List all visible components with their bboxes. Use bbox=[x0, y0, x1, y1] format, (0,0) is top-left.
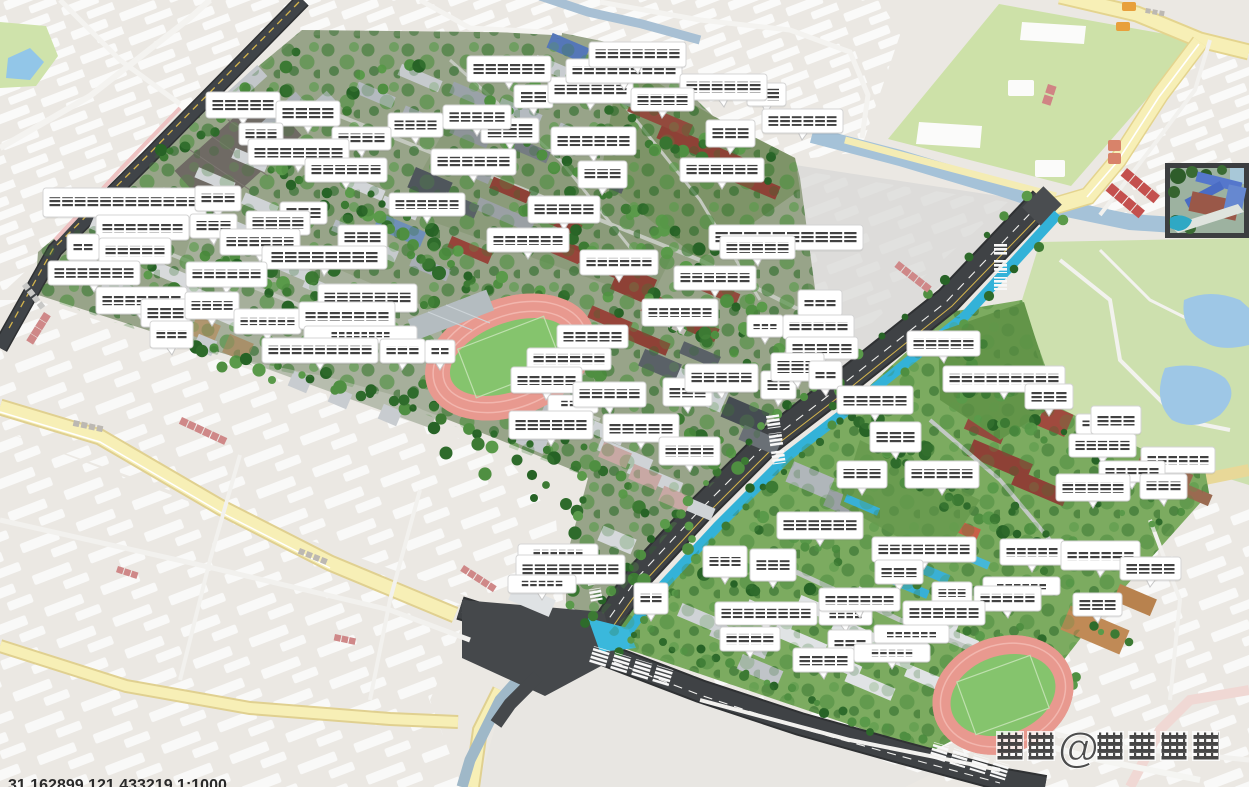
svg-text:@: @ bbox=[1058, 724, 1099, 771]
svg-text:31.162899,121.433219 1:1000: 31.162899,121.433219 1:1000 bbox=[8, 777, 227, 787]
